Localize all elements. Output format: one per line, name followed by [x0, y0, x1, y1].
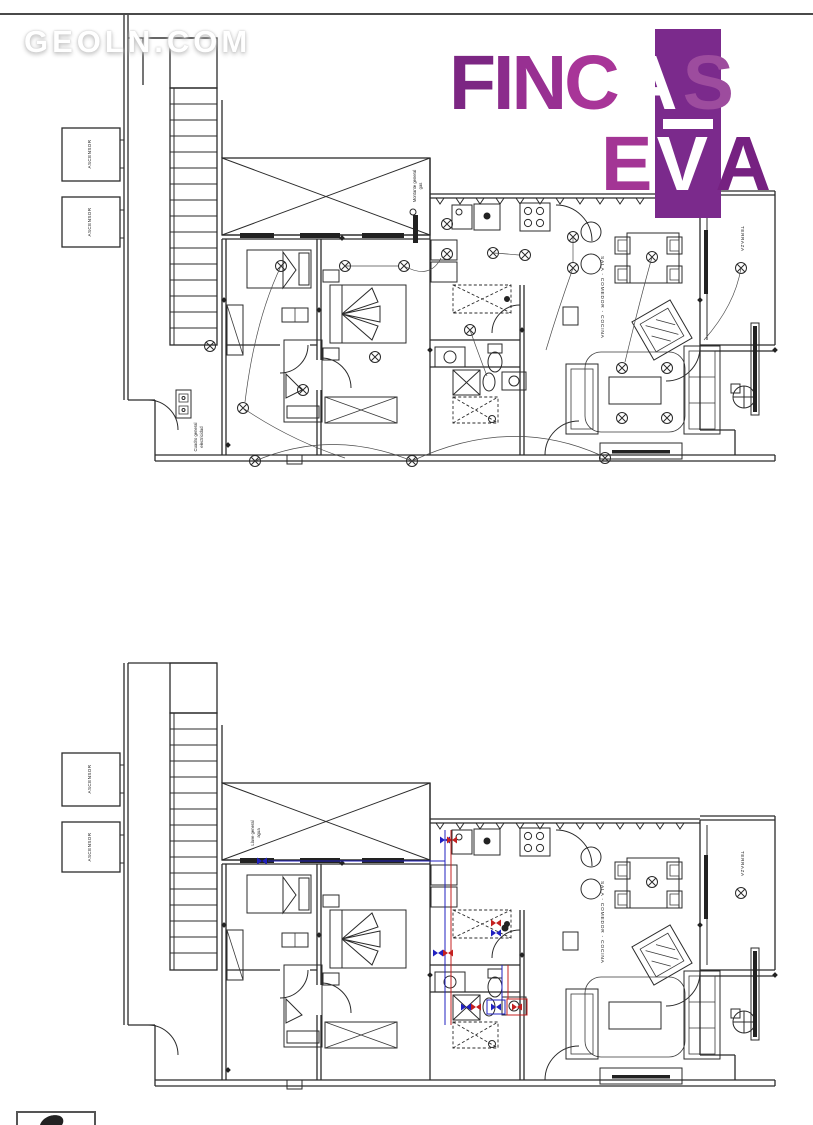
panel-label-line1: Cuadro general: [193, 423, 198, 452]
logo-letter-a-end: A: [715, 126, 768, 203]
gas-riser-label-line1: Montante general: [412, 170, 417, 203]
north-marker: [17, 1112, 95, 1125]
watermark: GEOLN.COM: [24, 24, 251, 60]
panel-label-line2: electricidad: [199, 426, 204, 448]
logo-letter-v-boxed: V: [649, 126, 715, 203]
logo-letter-c: C: [564, 45, 617, 122]
water-main-label-line2: agua: [256, 828, 261, 838]
logo-letter-n: N: [511, 45, 564, 122]
logo-letter-a-boxed: A: [617, 45, 683, 122]
gas-riser: [413, 215, 418, 243]
gas-riser-label-line2: gas: [418, 183, 423, 190]
logo-letter-e: E: [601, 126, 649, 203]
water-main-label-line1: Llave general: [250, 820, 255, 845]
plumbing-overlay: Llave general agua: [250, 820, 527, 1025]
logo-letter-s: S: [683, 45, 731, 122]
logo-line-fincas: FINCAS: [449, 45, 731, 122]
floor-plan-plumbing: [62, 663, 778, 1089]
logo-letter-f: F: [449, 45, 493, 122]
logo-line-eva: EVA: [601, 126, 768, 203]
floorplan-sheet: { "watermark": { "text": "GEOLN.COM" }, …: [0, 0, 813, 1125]
logo-letter-i: I: [493, 45, 511, 122]
hot-water-lines: [443, 830, 527, 1025]
wiring: [243, 237, 741, 461]
